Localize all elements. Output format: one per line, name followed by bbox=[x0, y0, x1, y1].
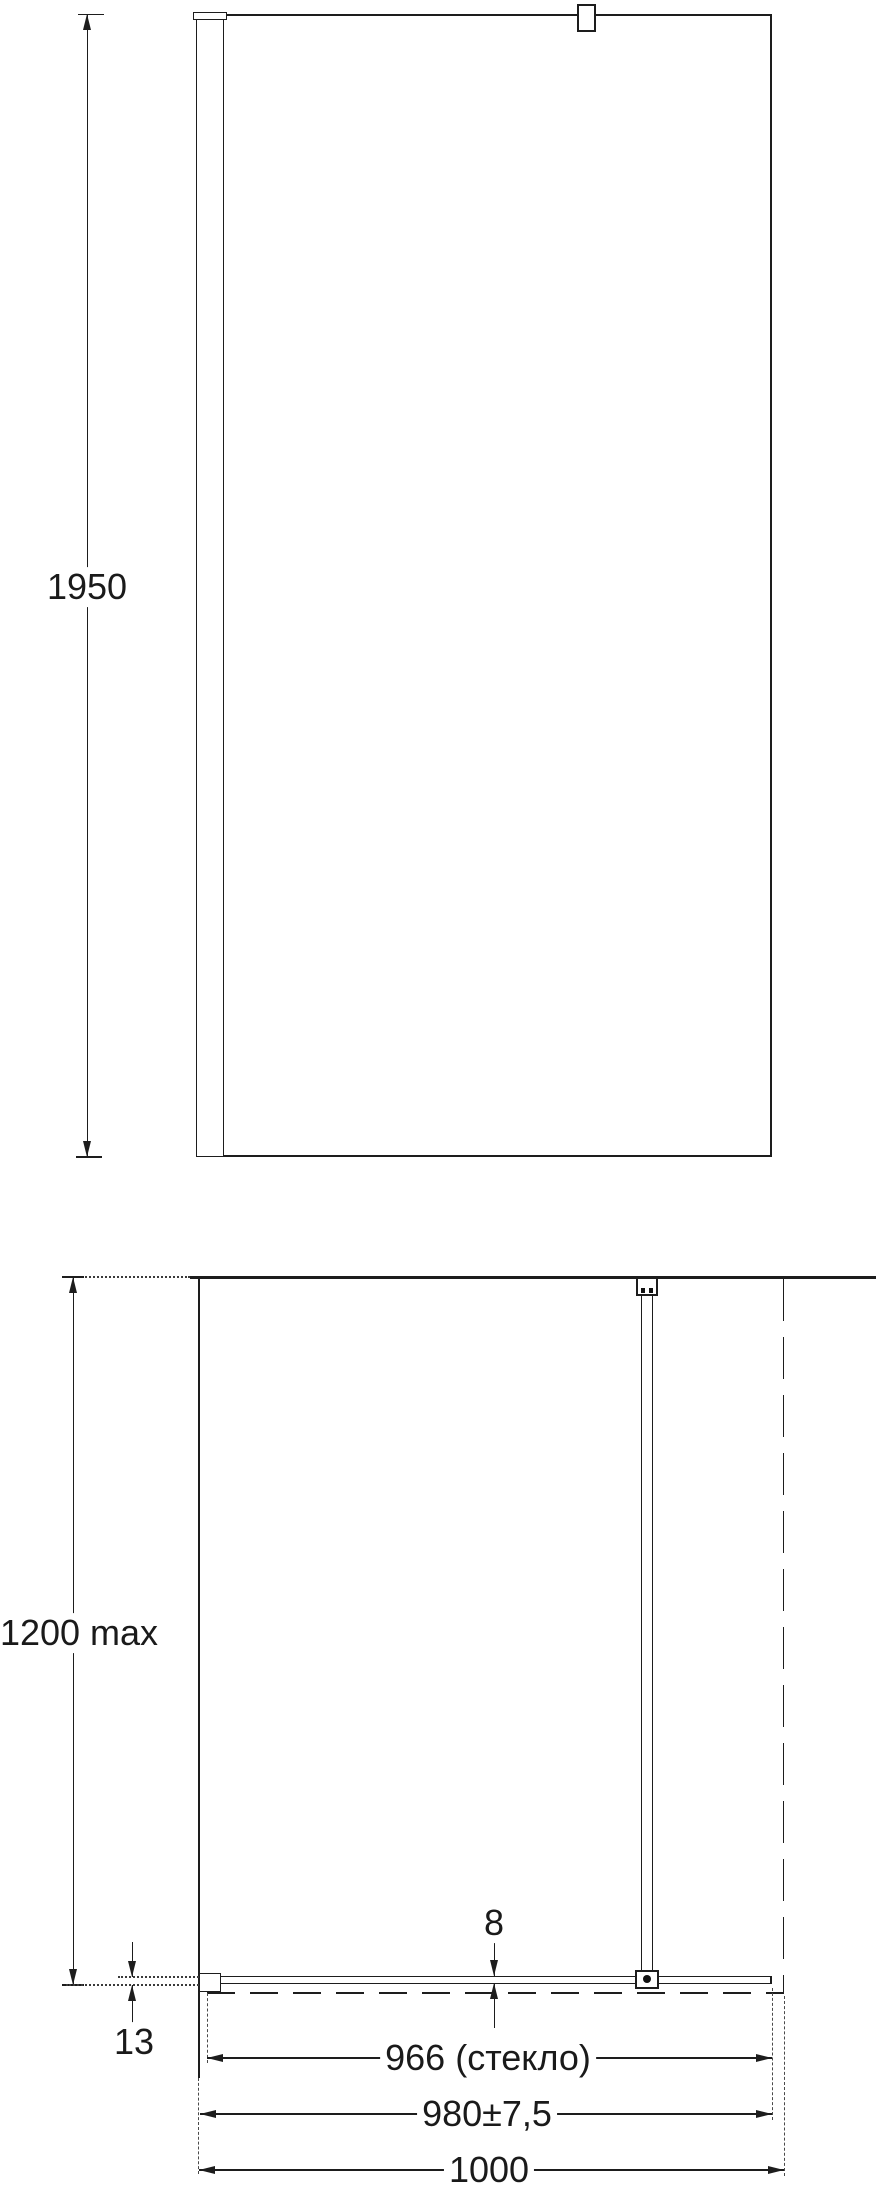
bracket-screw-right bbox=[649, 1288, 653, 1293]
front-glass-outline bbox=[197, 14, 772, 1157]
dim-13-arrow-down bbox=[128, 1961, 136, 1977]
front-support-bracket bbox=[577, 4, 596, 32]
dim-1950-label: 1950 bbox=[42, 567, 132, 607]
dim-1200-label: 1200 max bbox=[0, 1613, 163, 1653]
dim-1200-arrow-up bbox=[69, 1277, 77, 1293]
clamp-pin-dot bbox=[643, 1975, 651, 1983]
plan-support-bar bbox=[641, 1296, 653, 1971]
dim-1000-arrow-right bbox=[768, 2166, 784, 2174]
dim-980-label: 980±7,5 bbox=[417, 2094, 557, 2134]
dim-1000-arrow-left bbox=[199, 2166, 215, 2174]
plan-bar-glass-clamp bbox=[635, 1970, 659, 1989]
dim-980-arrow-left bbox=[200, 2110, 216, 2118]
dim-1200-bottom-leader-dotted bbox=[66, 1984, 206, 1986]
dim-1950-arrow-up bbox=[83, 14, 91, 30]
dim-8-arrow-down bbox=[490, 1960, 498, 1976]
plan-bar-wall-bracket bbox=[636, 1277, 658, 1296]
ext-glass-left-dashed bbox=[207, 1993, 208, 2063]
dim-8-arrow-up bbox=[490, 1983, 498, 1999]
plan-wall-profile bbox=[199, 1973, 221, 1992]
dim-1950-arrow-down bbox=[83, 1141, 91, 1157]
plan-back-wall-leader-dotted bbox=[66, 1276, 190, 1278]
dim-1950-tick-top bbox=[78, 14, 104, 16]
dim-966-arrow-left bbox=[207, 2054, 223, 2062]
bracket-screw-left bbox=[641, 1288, 645, 1293]
plan-left-wall-line bbox=[198, 1277, 201, 2078]
dim-13-label: 13 bbox=[109, 2022, 159, 2062]
dim-1000-label: 1000 bbox=[444, 2150, 534, 2190]
dim-980-arrow-right bbox=[756, 2110, 772, 2118]
ext-opening-right-dashed bbox=[784, 1996, 785, 2176]
technical-drawing-canvas: 1950 1200 max bbox=[0, 0, 876, 2200]
plan-opening-dashed-vertical bbox=[783, 1279, 785, 1993]
dim-966-arrow-right bbox=[756, 2054, 772, 2062]
dim-8-label: 8 bbox=[479, 1903, 509, 1943]
dim-966-label: 966 (стекло) bbox=[380, 2038, 596, 2078]
dim-13-arrow-up bbox=[128, 1985, 136, 2001]
front-wall-profile bbox=[196, 13, 224, 1157]
plan-glass-end-cap bbox=[770, 1976, 773, 1984]
front-profile-top-cap bbox=[193, 12, 227, 20]
plan-back-wall-line bbox=[190, 1276, 876, 1279]
dim-1200-arrow-down bbox=[69, 1969, 77, 1985]
plan-left-wall-ext-dashed bbox=[198, 2078, 199, 2174]
